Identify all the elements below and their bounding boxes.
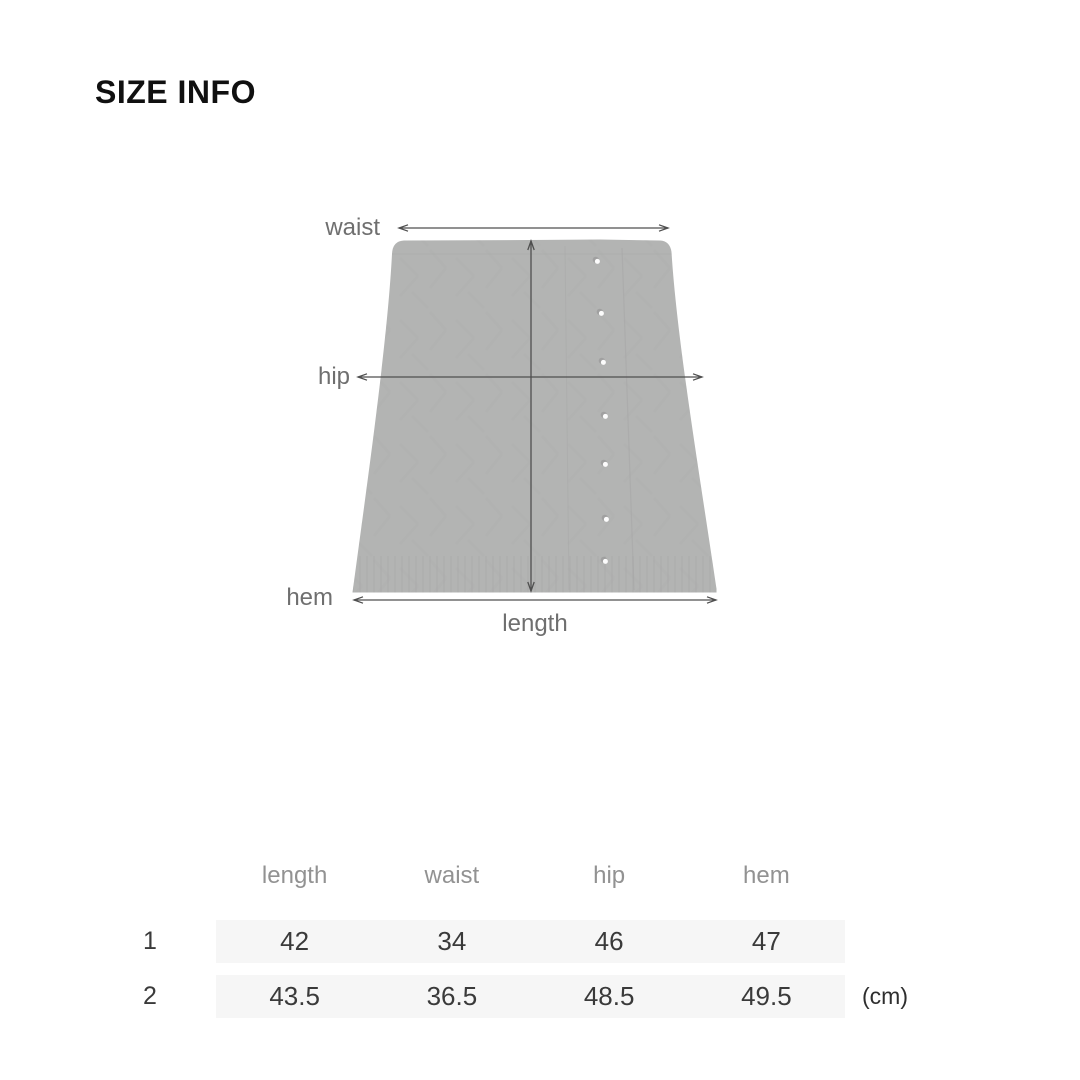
size-info-page: SIZE INFO	[0, 0, 1080, 1080]
skirt-measurement-diagram	[0, 0, 1080, 1080]
column-header-waist: waist	[373, 860, 530, 892]
size-value: 48.5	[531, 975, 688, 1018]
hip-label: hip	[318, 363, 350, 391]
knit-texture	[340, 235, 730, 600]
length-label: length	[502, 610, 567, 638]
size-value: 47	[688, 920, 845, 963]
hem-label: hem	[286, 584, 333, 612]
hem-measure-arrow	[354, 597, 716, 603]
size-value: 42	[216, 920, 373, 963]
waist-measure-arrow	[399, 225, 668, 231]
ribbed-hem-texture	[340, 556, 730, 596]
table-row: 42 34 46 47	[216, 920, 845, 963]
size-table-header-row: length waist hip hem	[216, 860, 845, 892]
column-header-hip: hip	[531, 860, 688, 892]
column-header-hem: hem	[688, 860, 845, 892]
column-header-length: length	[216, 860, 373, 892]
unit-label: (cm)	[862, 975, 908, 1018]
table-row: 43.5 36.5 48.5 49.5	[216, 975, 845, 1018]
size-value: 34	[373, 920, 530, 963]
row-number: 1	[120, 920, 180, 963]
size-value: 36.5	[373, 975, 530, 1018]
skirt-shape	[340, 235, 730, 600]
size-value: 46	[531, 920, 688, 963]
waist-label: waist	[325, 214, 380, 242]
row-number: 2	[120, 975, 180, 1018]
size-value: 49.5	[688, 975, 845, 1018]
size-value: 43.5	[216, 975, 373, 1018]
